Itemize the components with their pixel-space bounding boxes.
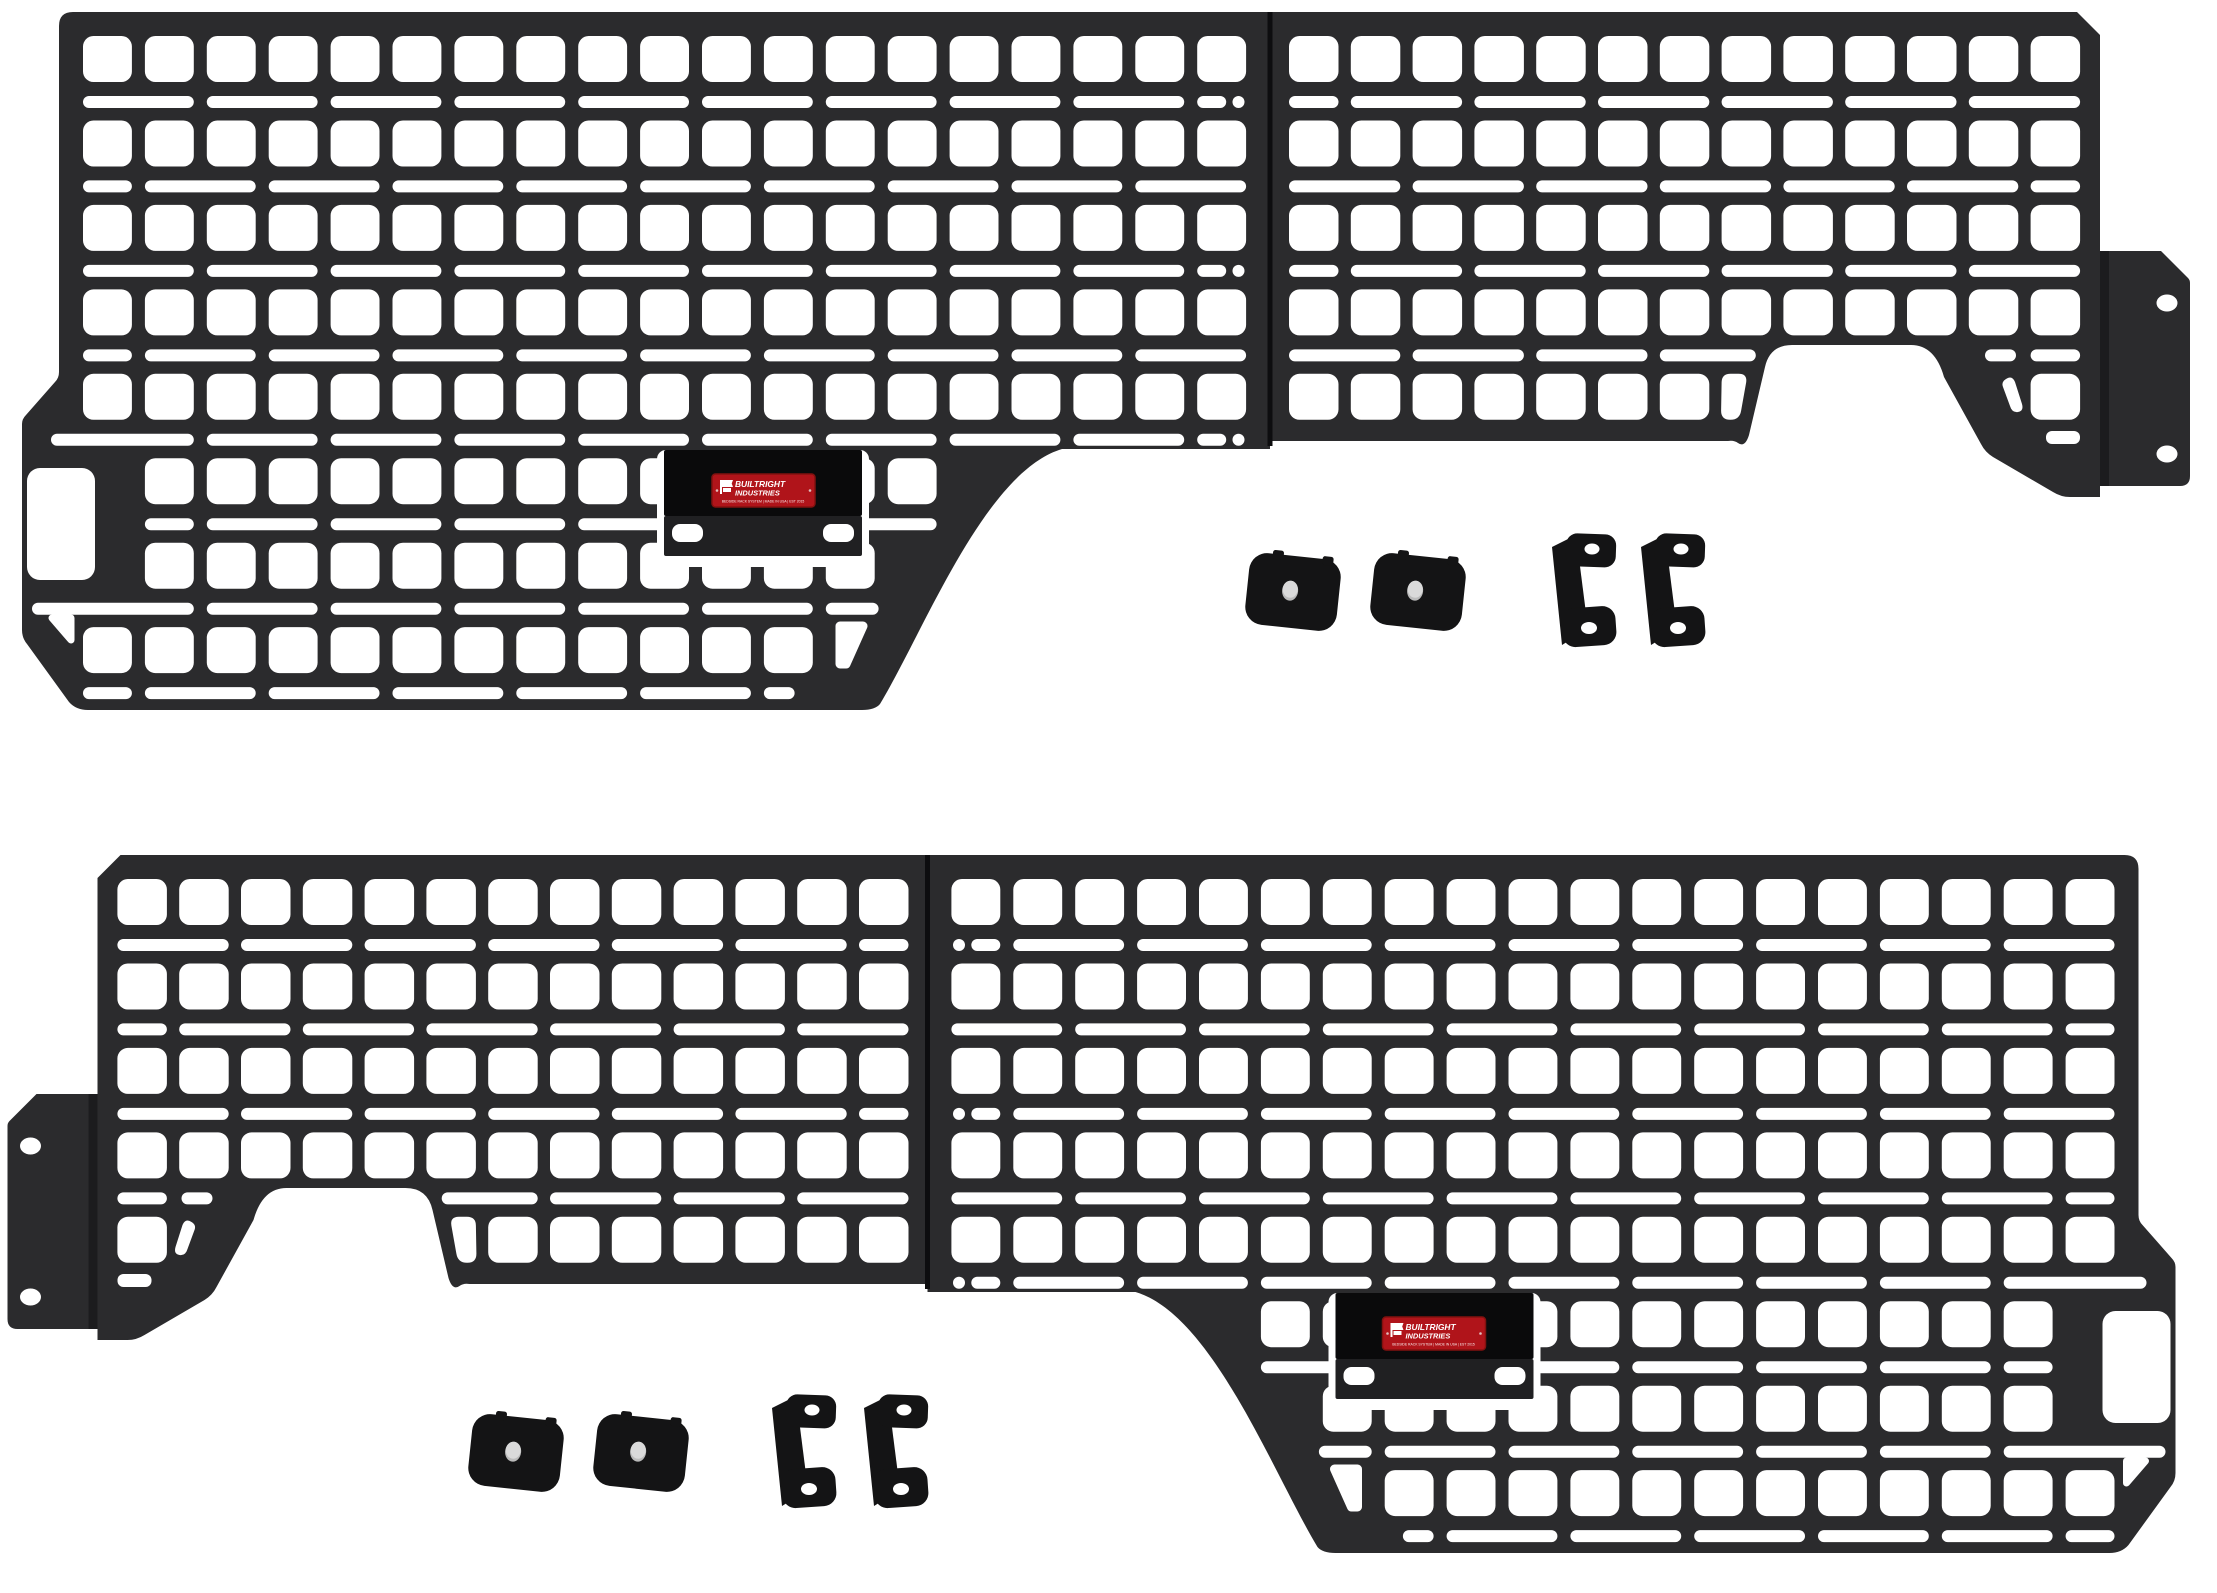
svg-text:BUILTRIGHT: BUILTRIGHT [735,479,786,489]
svg-text:BEDSIDE RACK SYSTEM | MADE IN: BEDSIDE RACK SYSTEM | MADE IN USA | EST … [1392,1343,1475,1347]
svg-text:BEDSIDE RACK SYSTEM | MADE IN: BEDSIDE RACK SYSTEM | MADE IN USA | EST … [722,500,805,504]
svg-text:BUILTRIGHT: BUILTRIGHT [1406,1322,1457,1332]
svg-text:INDUSTRIES: INDUSTRIES [735,489,780,498]
svg-text:INDUSTRIES: INDUSTRIES [1406,1332,1451,1341]
